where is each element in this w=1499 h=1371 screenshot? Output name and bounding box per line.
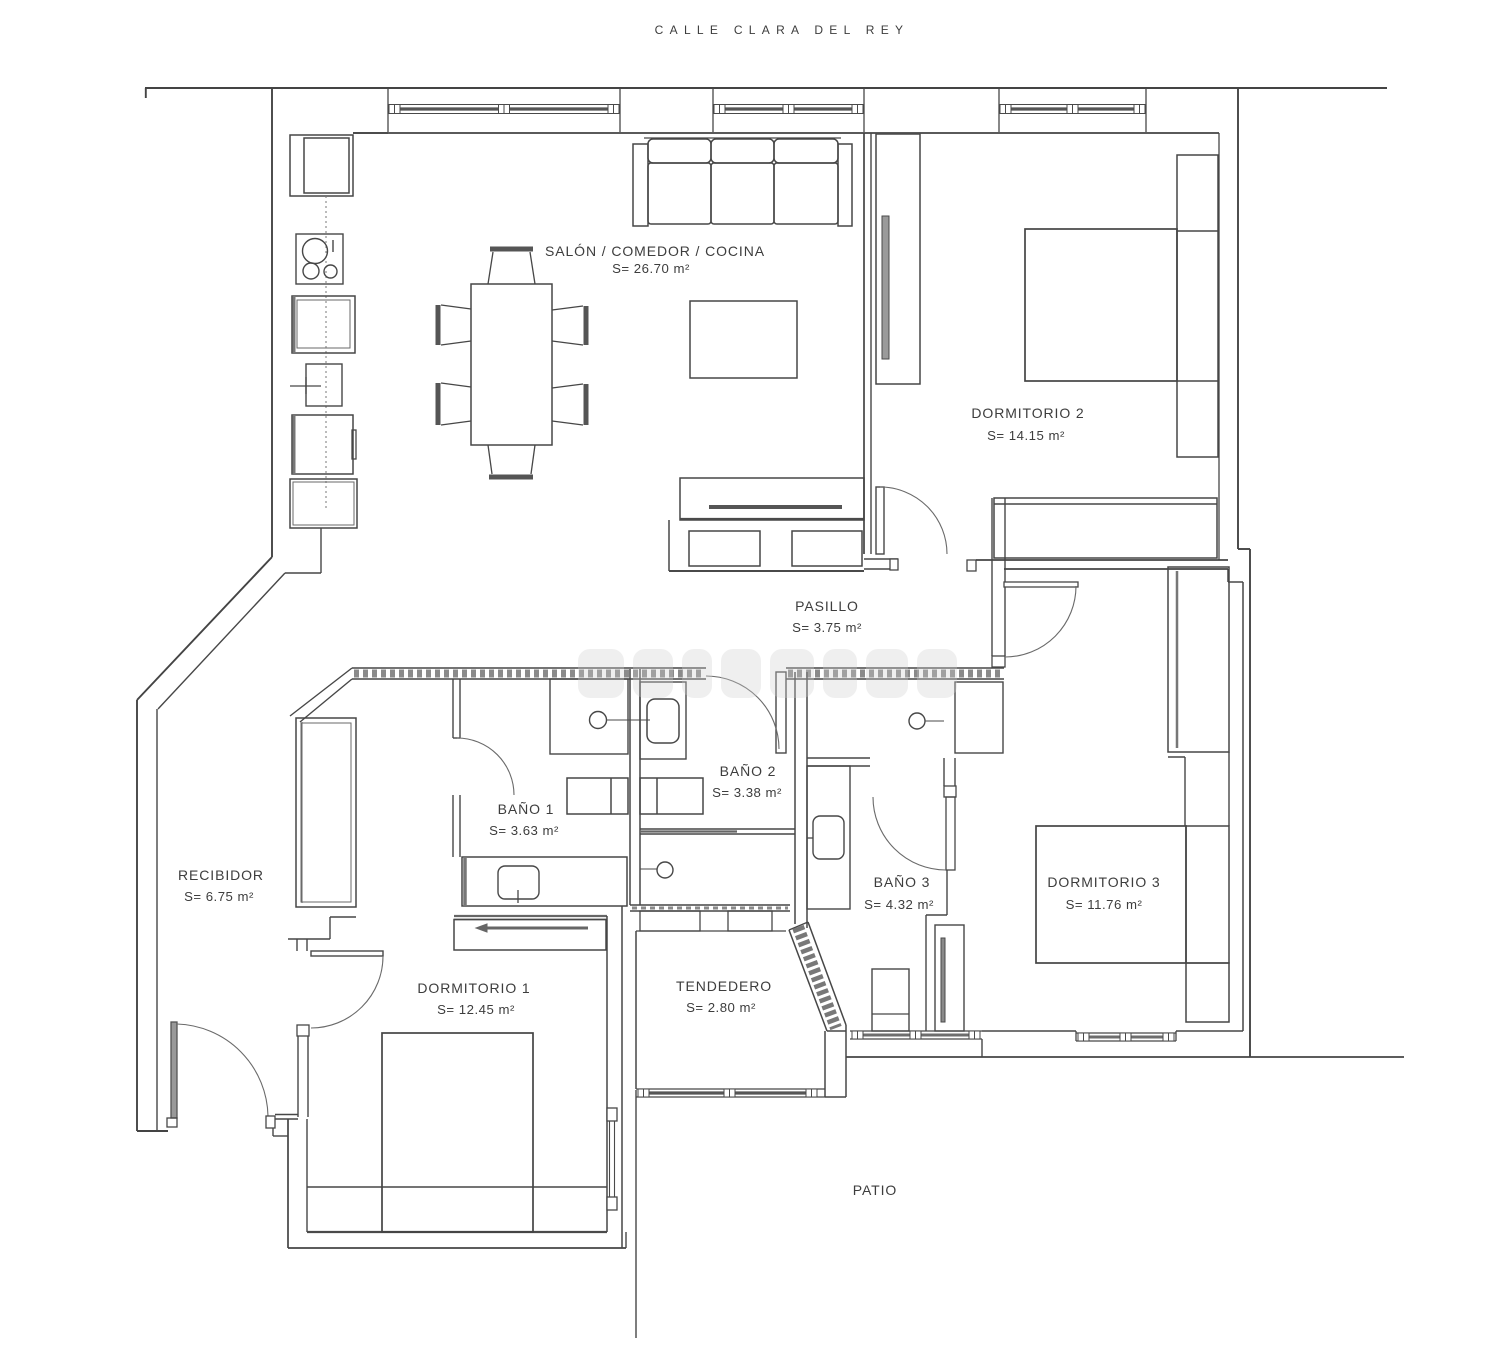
svg-text:S= 3.75 m²: S= 3.75 m² — [792, 620, 862, 635]
svg-text:S= 2.80 m²: S= 2.80 m² — [686, 1000, 756, 1015]
svg-text:BAÑO 1: BAÑO 1 — [498, 801, 555, 817]
svg-text:S= 12.45 m²: S= 12.45 m² — [437, 1002, 515, 1017]
svg-text:BAÑO 2: BAÑO 2 — [720, 763, 777, 779]
svg-text:DORMITORIO 2: DORMITORIO 2 — [971, 405, 1084, 421]
svg-text:S= 6.75 m²: S= 6.75 m² — [184, 889, 254, 904]
svg-text:S= 4.32 m²: S= 4.32 m² — [864, 897, 934, 912]
svg-text:S= 3.38 m²: S= 3.38 m² — [712, 785, 782, 800]
svg-text:S= 3.63 m²: S= 3.63 m² — [489, 823, 559, 838]
svg-text:PASILLO: PASILLO — [795, 598, 859, 614]
svg-text:SALÓN / COMEDOR / COCINA: SALÓN / COMEDOR / COCINA — [545, 243, 765, 259]
svg-text:BAÑO 3: BAÑO 3 — [874, 874, 931, 890]
svg-text:S= 26.70 m²: S= 26.70 m² — [612, 261, 690, 276]
svg-text:PATIO: PATIO — [853, 1182, 897, 1198]
svg-text:RECIBIDOR: RECIBIDOR — [178, 867, 264, 883]
svg-text:CALLE CLARA DEL REY: CALLE CLARA DEL REY — [655, 23, 910, 37]
svg-text:DORMITORIO 3: DORMITORIO 3 — [1047, 874, 1160, 890]
svg-text:TENDEDERO: TENDEDERO — [676, 978, 772, 994]
svg-text:DORMITORIO 1: DORMITORIO 1 — [417, 980, 530, 996]
svg-text:S= 11.76 m²: S= 11.76 m² — [1066, 897, 1143, 912]
svg-text:S= 14.15 m²: S= 14.15 m² — [987, 428, 1065, 443]
